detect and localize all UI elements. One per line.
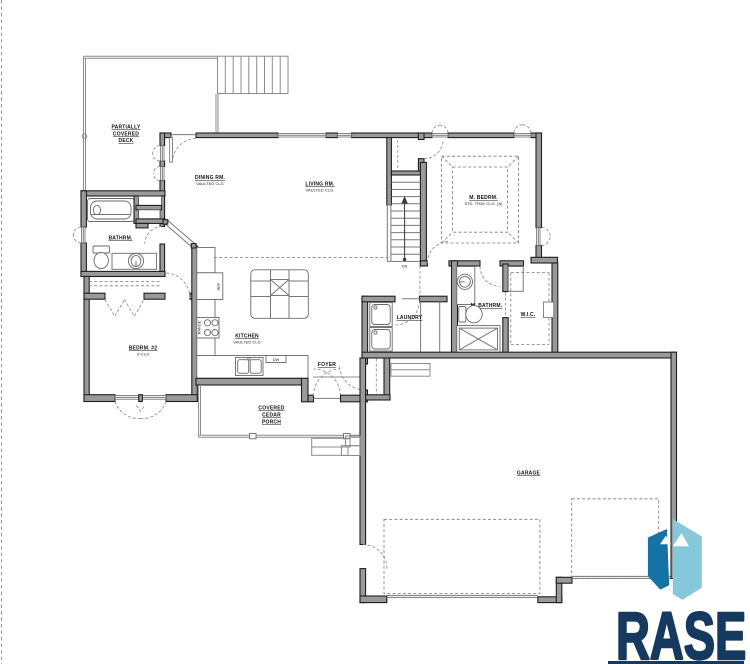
svg-text:REF: REF xyxy=(217,282,221,290)
svg-text:PORCH: PORCH xyxy=(262,420,281,426)
svg-text:COVERED: COVERED xyxy=(113,131,139,137)
svg-text:BATHRM.: BATHRM. xyxy=(108,236,132,242)
svg-text:DN: DN xyxy=(402,265,408,269)
svg-text:VAULTED CLG: VAULTED CLG xyxy=(233,340,261,345)
svg-text:RANGE: RANGE xyxy=(198,320,202,334)
svg-text:FOYER: FOYER xyxy=(318,362,336,368)
svg-text:STD. TRAY CLG. (A): STD. TRAY CLG. (A) xyxy=(464,201,503,206)
svg-text:VAULTED CLG: VAULTED CLG xyxy=(196,181,224,186)
svg-text:VAULTED CLG.: VAULTED CLG. xyxy=(306,188,335,193)
svg-text:W.I.C.: W.I.C. xyxy=(521,312,536,318)
svg-text:DECK: DECK xyxy=(119,138,134,144)
svg-text:DW: DW xyxy=(273,358,280,362)
svg-text:RASE: RASE xyxy=(616,600,746,664)
svg-text:9' CLG: 9' CLG xyxy=(137,352,150,357)
svg-text:LAUNDRY: LAUNDRY xyxy=(397,315,423,321)
svg-text:GARAGE: GARAGE xyxy=(517,471,541,477)
svg-text:PARTIALLY: PARTIALLY xyxy=(111,125,140,131)
svg-text:COVERED: COVERED xyxy=(258,406,284,412)
svg-text:CEDAR: CEDAR xyxy=(262,413,281,419)
